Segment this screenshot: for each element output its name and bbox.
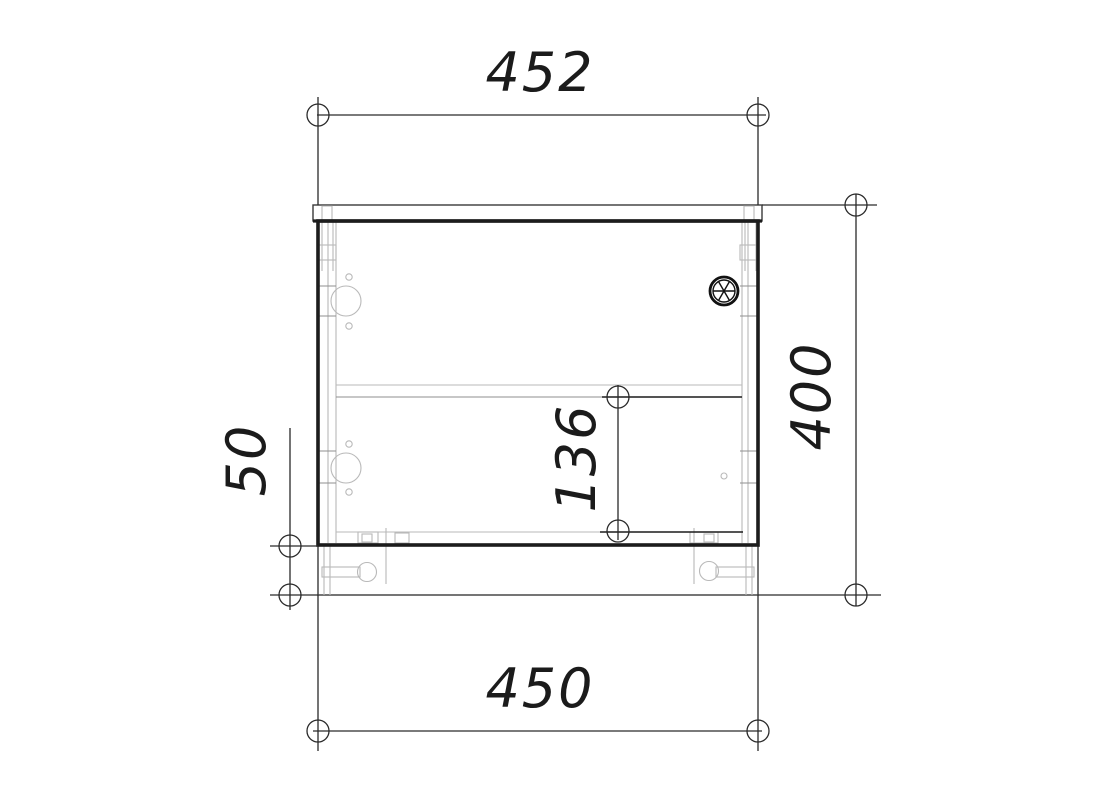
dimension-top-width-label: 452: [485, 41, 594, 104]
dimension-shelf-height: [607, 385, 629, 542]
dimension-bottom-width-label: 450: [485, 657, 594, 720]
screw-hole: [721, 473, 727, 479]
top-rail: [313, 205, 762, 221]
dimension-shelf-height-label: 136: [545, 403, 608, 512]
dimension-top-width: [307, 97, 769, 205]
plinth: [318, 545, 758, 595]
dimension-overall-height-label: 400: [780, 341, 843, 450]
technical-drawing-canvas: 452 400 450 50 136: [0, 0, 1100, 800]
cable-gland-icon: [710, 277, 738, 305]
drawing-page: 452 400 450 50 136: [0, 0, 1100, 800]
dimension-plinth-height-label: 50: [215, 424, 278, 497]
interior-details: [319, 206, 757, 595]
cabinet-outline: [313, 221, 762, 545]
